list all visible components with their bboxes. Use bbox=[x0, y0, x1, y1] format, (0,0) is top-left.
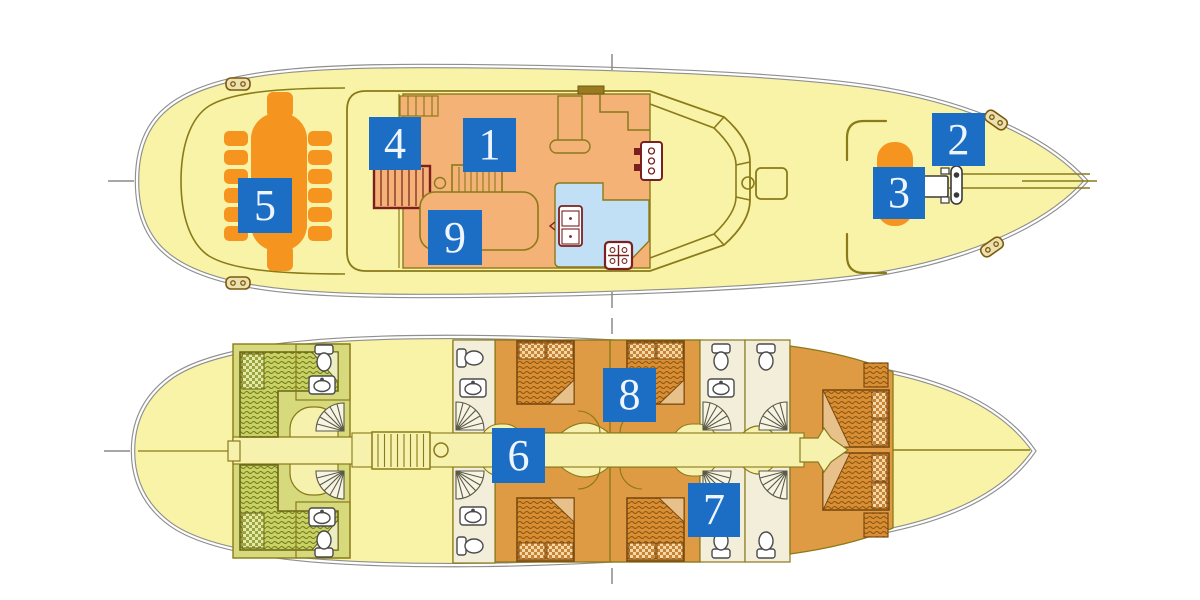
salon-door bbox=[578, 86, 604, 94]
deck-plan-drawing bbox=[0, 0, 1200, 600]
lower-deck bbox=[104, 318, 1034, 584]
salon-locker bbox=[400, 96, 438, 116]
toilet-icon bbox=[315, 345, 333, 371]
sink-icon bbox=[309, 376, 335, 394]
cleat-icon bbox=[226, 277, 250, 289]
cabin-marker-1: 1 bbox=[463, 118, 516, 172]
stove-icon bbox=[605, 242, 632, 269]
toilet-icon bbox=[457, 349, 483, 367]
staircase bbox=[372, 432, 430, 469]
toilet-icon bbox=[757, 532, 775, 558]
toilet-icon bbox=[712, 344, 730, 370]
double-bed bbox=[517, 341, 574, 404]
aft-cabins bbox=[228, 344, 355, 558]
deck-plan-figure: 1 2 3 4 5 6 7 8 9 bbox=[0, 0, 1200, 600]
cabin-marker-8: 8 bbox=[603, 368, 656, 422]
double-bed bbox=[823, 390, 889, 447]
toilet-icon bbox=[457, 537, 483, 555]
sink-icon bbox=[460, 379, 486, 397]
cabinet bbox=[864, 513, 888, 537]
deckhouse bbox=[347, 86, 750, 271]
cabin-marker-7: 7 bbox=[688, 483, 740, 537]
toilet-icon bbox=[757, 344, 775, 370]
cabin-marker-4: 4 bbox=[369, 117, 421, 170]
cleat-icon bbox=[226, 78, 250, 90]
sink-icon bbox=[460, 507, 486, 525]
double-bed bbox=[823, 453, 889, 510]
corridor-porthole bbox=[434, 443, 448, 457]
sink-icon bbox=[309, 508, 335, 526]
sink-icon bbox=[708, 379, 734, 397]
double-bed bbox=[627, 498, 684, 561]
stern-door bbox=[228, 441, 240, 461]
cabin-marker-3: 3 bbox=[873, 167, 925, 219]
cabin-marker-2: 2 bbox=[932, 113, 985, 166]
toilet-icon bbox=[315, 531, 333, 557]
cabin-marker-5: 5 bbox=[238, 178, 292, 233]
cabinet bbox=[864, 363, 888, 387]
cabin-marker-6: 6 bbox=[492, 428, 545, 483]
cabin-marker-9: 9 bbox=[428, 210, 482, 265]
double-bed bbox=[517, 498, 574, 561]
